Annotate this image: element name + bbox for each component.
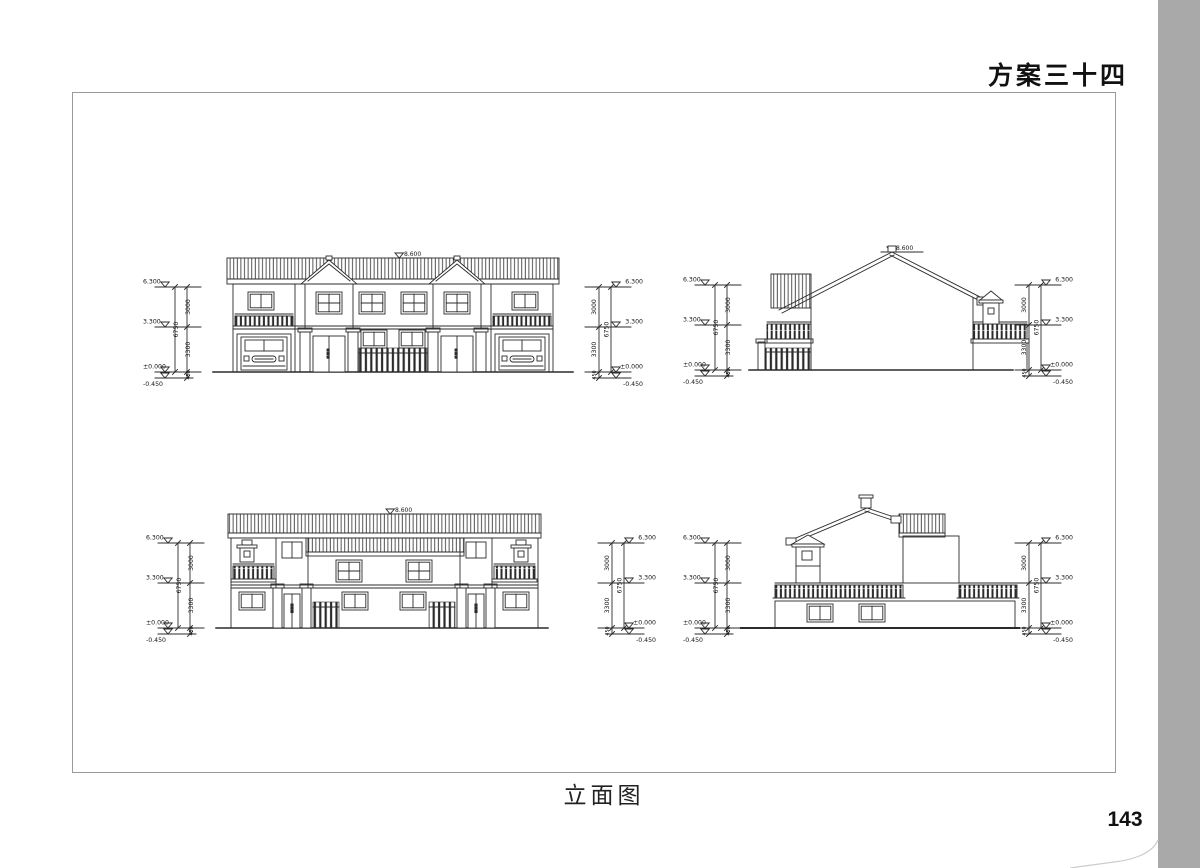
- window: [399, 330, 425, 348]
- window: [359, 292, 385, 314]
- window: [444, 292, 470, 314]
- book-page: 8.600 6.300 3.300 ±0.000 -0.450 3000 330…: [0, 0, 1200, 868]
- roof-tile-band-lower: [306, 538, 464, 552]
- eave-block: [891, 516, 901, 523]
- balcony-balustrade: [767, 324, 811, 339]
- terrace-balustrade: [973, 324, 1027, 339]
- chimney: [240, 548, 254, 562]
- roof-tile-band: [899, 514, 945, 533]
- window: [316, 292, 342, 314]
- peak-level-marker: [389, 251, 431, 258]
- picket-fence: [359, 348, 427, 372]
- balcony-balustrade: [493, 316, 551, 326]
- dormer: [796, 547, 820, 566]
- dimension-stack-right: [585, 279, 643, 389]
- peak-level-marker: [881, 245, 923, 252]
- peak-level-marker: [380, 507, 422, 514]
- roof-fascia: [227, 279, 559, 284]
- chimney-top: [516, 540, 526, 545]
- window: [342, 592, 368, 610]
- window: [512, 292, 538, 310]
- side-elevation-2-drawing: [683, 488, 1073, 663]
- chimney-cap: [980, 291, 1002, 300]
- dimension-stack-right: [1015, 535, 1073, 645]
- side-elevation-drawing: [683, 230, 1073, 405]
- window: [503, 592, 529, 610]
- roof-tile-band: [228, 514, 541, 533]
- roof-fascia: [228, 533, 541, 538]
- page-curl: [1056, 834, 1160, 868]
- vehicle: [499, 337, 545, 370]
- dimension-stack-left: [683, 277, 741, 387]
- window: [401, 292, 427, 314]
- picket-fence: [429, 602, 455, 628]
- roof-tile-band: [227, 258, 559, 279]
- page-edge-band: [1158, 0, 1200, 868]
- dimension-stack-left: [143, 279, 201, 389]
- roof-slope: [890, 255, 980, 301]
- page-title: 方案三十四: [0, 56, 1128, 92]
- balcony-balustrade: [235, 316, 293, 326]
- vehicle: [241, 337, 287, 370]
- upper-storey-wall: [903, 536, 959, 583]
- window: [248, 292, 274, 310]
- window: [406, 560, 432, 582]
- rear-elevation-drawing: [146, 488, 656, 663]
- terrace-balustrade: [775, 585, 903, 598]
- window: [239, 592, 265, 610]
- roof-tile-band: [771, 274, 811, 308]
- chimney-top: [242, 540, 252, 545]
- window: [807, 604, 833, 622]
- window: [859, 604, 885, 622]
- balcony-balustrade: [233, 566, 274, 579]
- terrace-balustrade: [959, 585, 1017, 598]
- page-number: 143: [1098, 808, 1152, 832]
- dimension-stack-left: [683, 535, 741, 645]
- chimney: [861, 498, 871, 508]
- dimension-stack-left: [146, 535, 204, 645]
- content-frame: [72, 92, 1116, 773]
- dimension-stack-right: [598, 535, 656, 645]
- window: [361, 330, 387, 348]
- chimney: [514, 548, 528, 562]
- balcony-balustrade: [494, 566, 535, 579]
- window: [336, 560, 362, 582]
- roof-finial: [888, 246, 896, 252]
- chimney: [983, 303, 999, 324]
- figure-caption: 立面图: [0, 776, 1200, 810]
- picket-fence: [765, 348, 811, 370]
- gate-post: [758, 342, 765, 370]
- picket-fence: [313, 602, 339, 628]
- front-elevation-drawing: [143, 232, 643, 407]
- window: [400, 592, 426, 610]
- dormer-gable: [792, 535, 824, 544]
